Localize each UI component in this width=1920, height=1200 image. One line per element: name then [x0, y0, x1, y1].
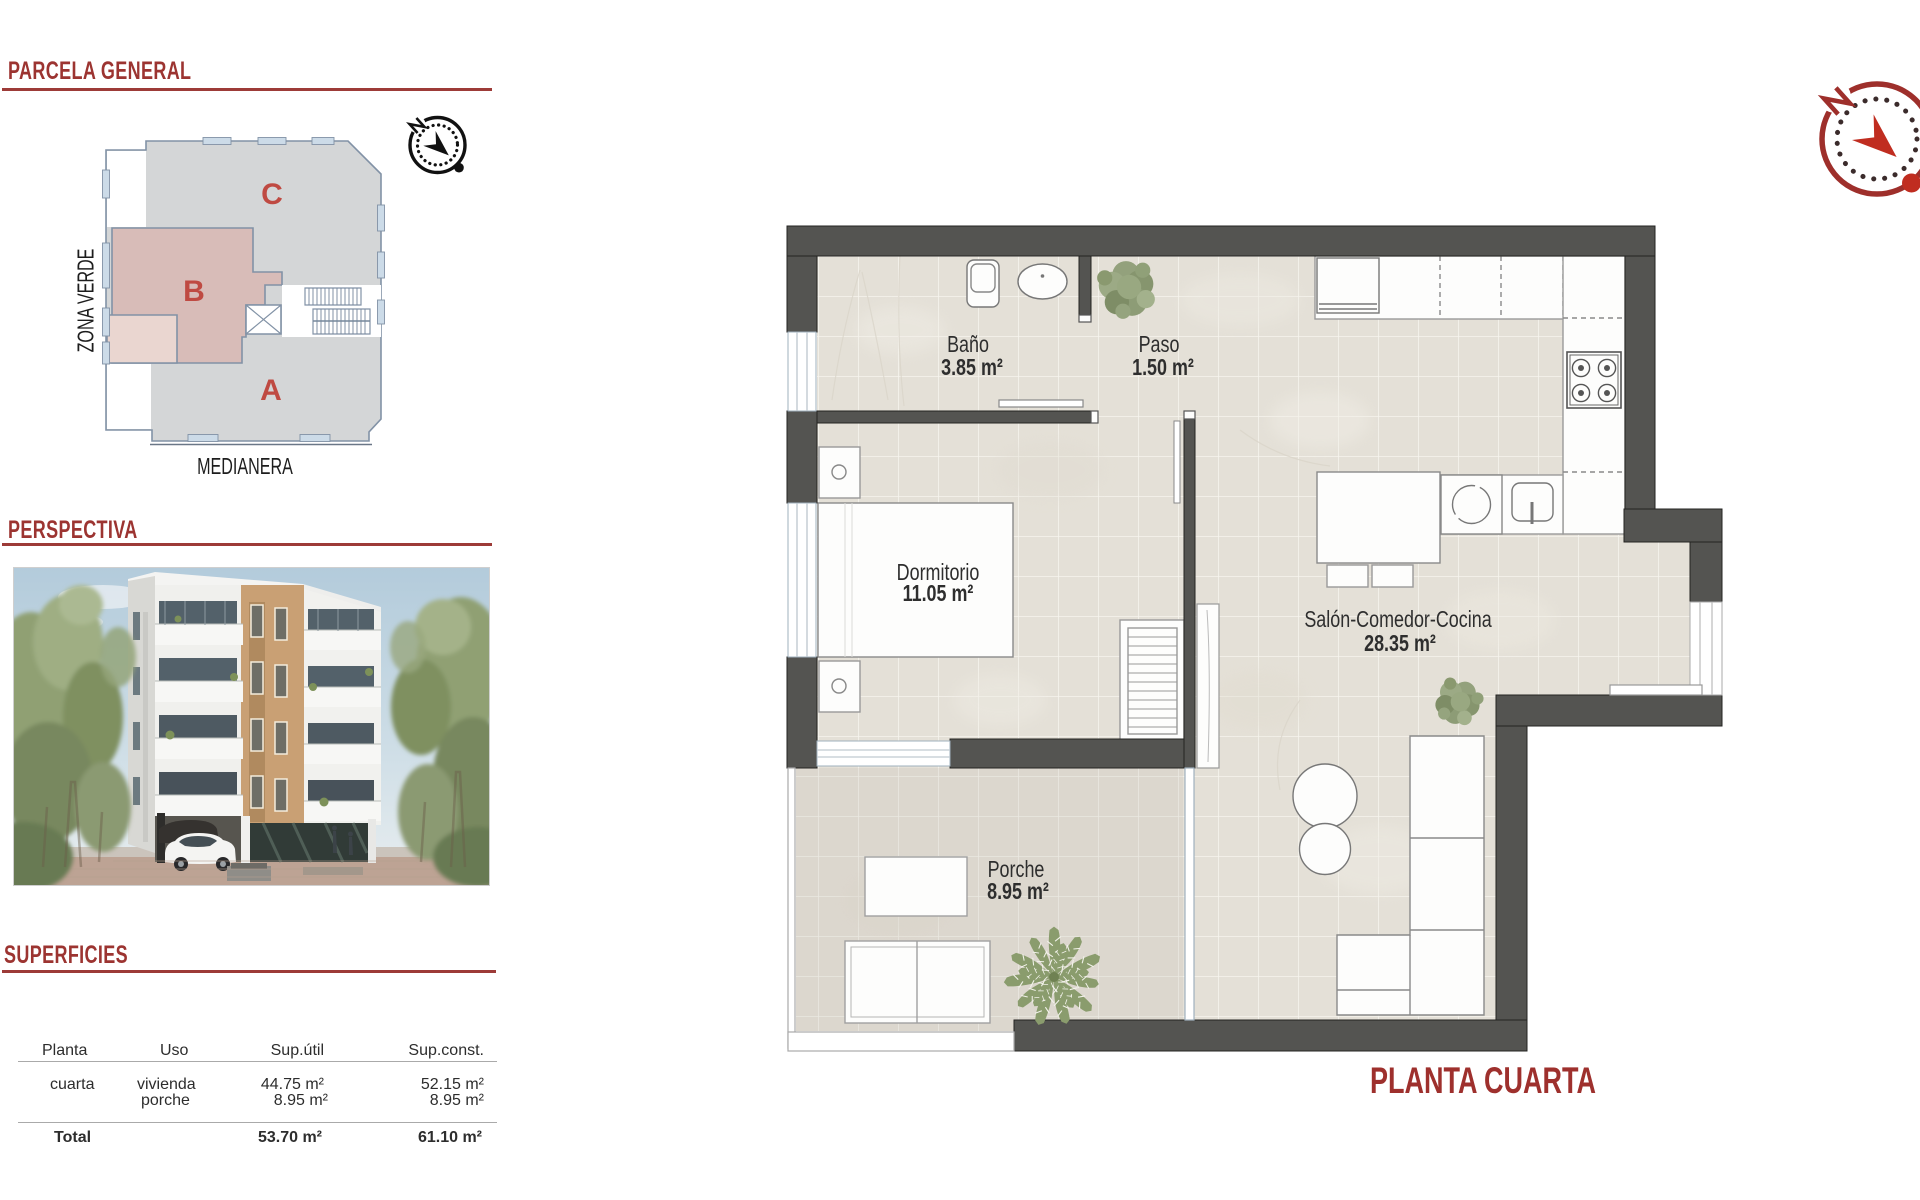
- svg-text:C: C: [261, 178, 283, 211]
- svg-text:A: A: [260, 374, 282, 407]
- svg-text:1.50 m²: 1.50 m²: [1132, 355, 1194, 381]
- svg-text:8.95 m²: 8.95 m²: [987, 879, 1049, 905]
- svg-text:Paso: Paso: [1139, 332, 1180, 358]
- svg-text:B: B: [183, 275, 205, 308]
- svg-text:Salón-Comedor-Cocina: Salón-Comedor-Cocina: [1304, 607, 1492, 633]
- svg-text:3.85 m²: 3.85 m²: [941, 355, 1003, 381]
- svg-text:11.05 m²: 11.05 m²: [903, 581, 974, 607]
- svg-text:Baño: Baño: [947, 332, 989, 358]
- svg-text:28.35 m²: 28.35 m²: [1364, 631, 1436, 657]
